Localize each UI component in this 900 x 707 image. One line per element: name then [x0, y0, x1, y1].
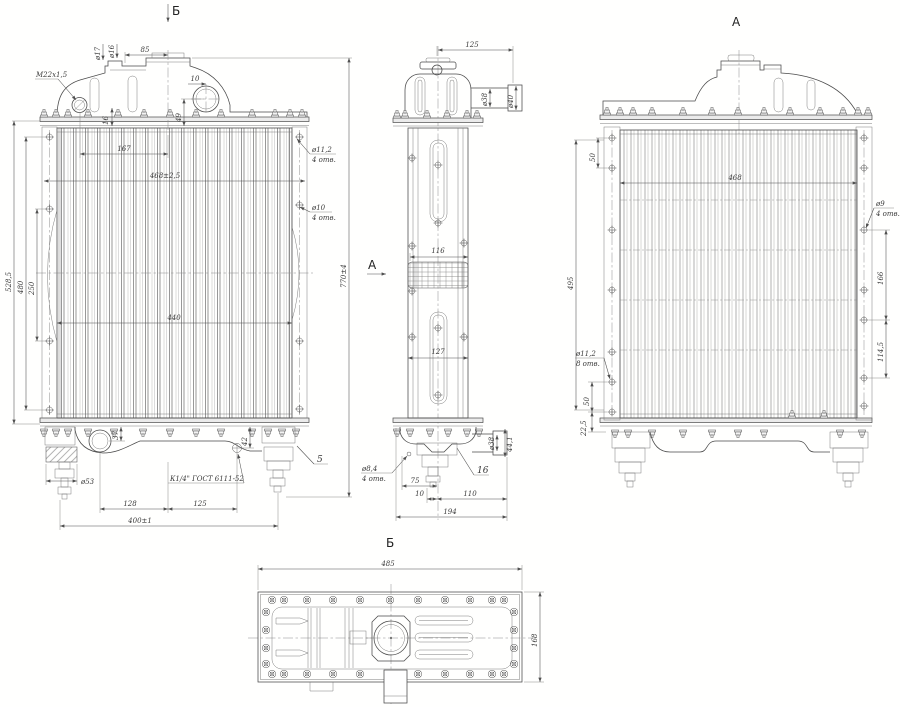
bottom-dimensions: 485 168 [258, 560, 544, 682]
dim-110: 110 [463, 490, 477, 498]
drawing-canvas: Б [0, 0, 900, 707]
dim-440: 440 [166, 314, 181, 322]
dim-10: 10 [191, 75, 200, 83]
drain-boss-hatched [46, 447, 77, 462]
dim-85: 85 [141, 46, 150, 54]
callout-d10-qty: 4 отв. [311, 214, 336, 222]
rear-view-title: А [732, 15, 741, 29]
dim-thread-m22: М22х1,5 [35, 71, 68, 79]
dim-167: 167 [117, 145, 131, 153]
callout-d10: ø10 [311, 204, 326, 212]
dim-480: 480 [17, 280, 25, 295]
dim-44-1: 44,1 [506, 436, 514, 453]
view-marker-top-label: Б [172, 4, 180, 18]
view-marker-side: А [367, 258, 386, 274]
dim-d16: ø16 [108, 44, 116, 59]
dim-250: 250 [28, 281, 36, 296]
dim-75: 75 [411, 477, 420, 485]
dim-42: 42 [241, 437, 249, 447]
rear-right-frame [856, 127, 872, 420]
rear-bottom-bolt-row [611, 430, 865, 438]
callout-d11-2-rear-qty: 8 отв. [576, 360, 600, 368]
bottom-view: Б [248, 536, 544, 706]
dim-d38-top: ø38 [481, 92, 489, 107]
front-view: М22х1,5 ø17 ø16 85 10 49 16 167 468±2,5 … [5, 44, 352, 530]
dim-166: 166 [877, 271, 885, 285]
callout-d11-2: ø11,2 [311, 146, 332, 154]
dim-d53: ø53 [80, 478, 95, 486]
dim-d40-top: ø40 [507, 94, 515, 109]
view-marker-top: Б [168, 4, 180, 22]
callout-d11-2-qty: 4 отв. [311, 156, 336, 164]
dim-770: 770±4 [340, 264, 348, 288]
callout-d9: ø9 [875, 200, 885, 208]
bottom-plate-outer [258, 592, 522, 682]
side-hub-block [408, 262, 468, 288]
dim-50-bottom: 50 [583, 397, 591, 406]
dim-125: 125 [193, 500, 207, 508]
front-bottom-tank [45, 427, 295, 499]
side-view: 125 ø38 ø40 116 127 ø8,4 4 отв. 75 10 11… [361, 41, 522, 521]
dim-116: 116 [431, 247, 445, 255]
dim-d38-bottom: ø38 [488, 436, 496, 451]
front-left-frame [42, 127, 57, 418]
dim-22-5: 22,5 [580, 420, 588, 437]
radiator-engineering-drawing: Б [0, 0, 900, 707]
item-number-5: 5 [317, 455, 323, 465]
callout-d8-4: ø8,4 [361, 465, 377, 473]
rear-top-tank [603, 55, 857, 115]
dim-194: 194 [443, 508, 456, 516]
bottom-outlet-stub [384, 670, 407, 703]
dim-50-top: 50 [589, 153, 597, 162]
front-bottom-bolt-row [40, 429, 299, 437]
dim-468: 468±2,5 [149, 172, 181, 180]
rear-top-bolt-row [603, 108, 871, 116]
dim-495: 495 [567, 276, 575, 291]
dim-114-5: 114,5 [877, 341, 885, 362]
dim-10-side: 10 [415, 490, 424, 498]
dim-49: 49 [175, 113, 183, 123]
front-right-frame [292, 127, 307, 418]
dim-37: 37 [112, 431, 120, 440]
dim-468-rear: 468 [727, 174, 742, 182]
callout-d11-2-rear: ø11,2 [575, 350, 596, 358]
view-marker-side-label: А [368, 258, 377, 272]
rear-bottom-tank [612, 432, 868, 487]
bottom-bolt-row-top [268, 596, 508, 604]
dim-528-5: 528,5 [5, 271, 13, 292]
callout-d9-qty: 4 отв. [875, 210, 900, 218]
callout-d8-4-qty: 4 отв. [361, 475, 386, 483]
bottom-view-title: Б [386, 536, 394, 550]
front-bottom-flange [40, 418, 309, 423]
side-top-bolt-row [393, 111, 480, 119]
dim-400: 400±1 [127, 517, 152, 525]
dim-128: 128 [123, 500, 137, 508]
rear-view: А [567, 15, 900, 487]
dim-16: 16 [102, 116, 110, 125]
dim-d17: ø17 [94, 46, 102, 61]
dim-168: 168 [531, 633, 539, 647]
rear-left-frame [604, 127, 620, 420]
drain-opening [89, 430, 111, 452]
callout-k14-gost: К1/4" ГОСТ 6111-52 [169, 475, 244, 483]
dim-485: 485 [380, 560, 395, 568]
dim-127: 127 [431, 348, 445, 356]
bottom-drain-tab [310, 682, 333, 691]
item-number-16: 16 [477, 466, 489, 476]
dim-125-side: 125 [465, 41, 479, 49]
